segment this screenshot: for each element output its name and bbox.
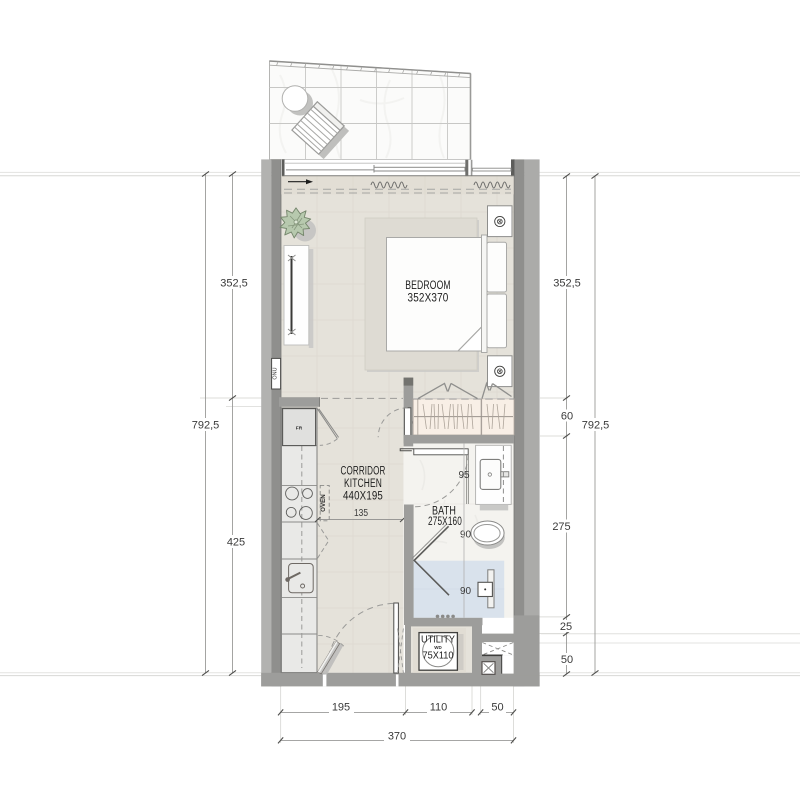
svg-text:275: 275 <box>552 521 570 533</box>
svg-text:195: 195 <box>332 702 350 714</box>
svg-text:90: 90 <box>460 586 472 597</box>
svg-text:440X195: 440X195 <box>343 491 383 503</box>
svg-text:FR: FR <box>296 426 303 432</box>
svg-text:90: 90 <box>460 530 472 541</box>
svg-text:OVEN: OVEN <box>320 494 327 512</box>
svg-text:110: 110 <box>430 702 448 714</box>
svg-text:425: 425 <box>227 537 245 549</box>
svg-text:275X160: 275X160 <box>428 516 462 528</box>
svg-text:370: 370 <box>388 731 406 743</box>
svg-text:352,5: 352,5 <box>220 278 248 290</box>
svg-text:135: 135 <box>354 508 368 519</box>
svg-text:792,5: 792,5 <box>192 419 220 431</box>
svg-text:UTILITY: UTILITY <box>421 634 455 646</box>
svg-text:792,5: 792,5 <box>582 419 610 431</box>
svg-text:BEDROOM: BEDROOM <box>405 280 451 292</box>
svg-text:352X370: 352X370 <box>408 293 449 305</box>
svg-text:ONU: ONU <box>273 367 279 379</box>
svg-text:75X110: 75X110 <box>423 650 454 662</box>
svg-text:50: 50 <box>561 654 573 666</box>
svg-text:352,5: 352,5 <box>553 278 581 290</box>
svg-text:CORRIDOR: CORRIDOR <box>341 466 386 478</box>
svg-text:60: 60 <box>561 410 573 422</box>
svg-text:50: 50 <box>491 702 503 714</box>
svg-text:25: 25 <box>560 621 572 633</box>
svg-text:KITCHEN: KITCHEN <box>344 478 382 490</box>
